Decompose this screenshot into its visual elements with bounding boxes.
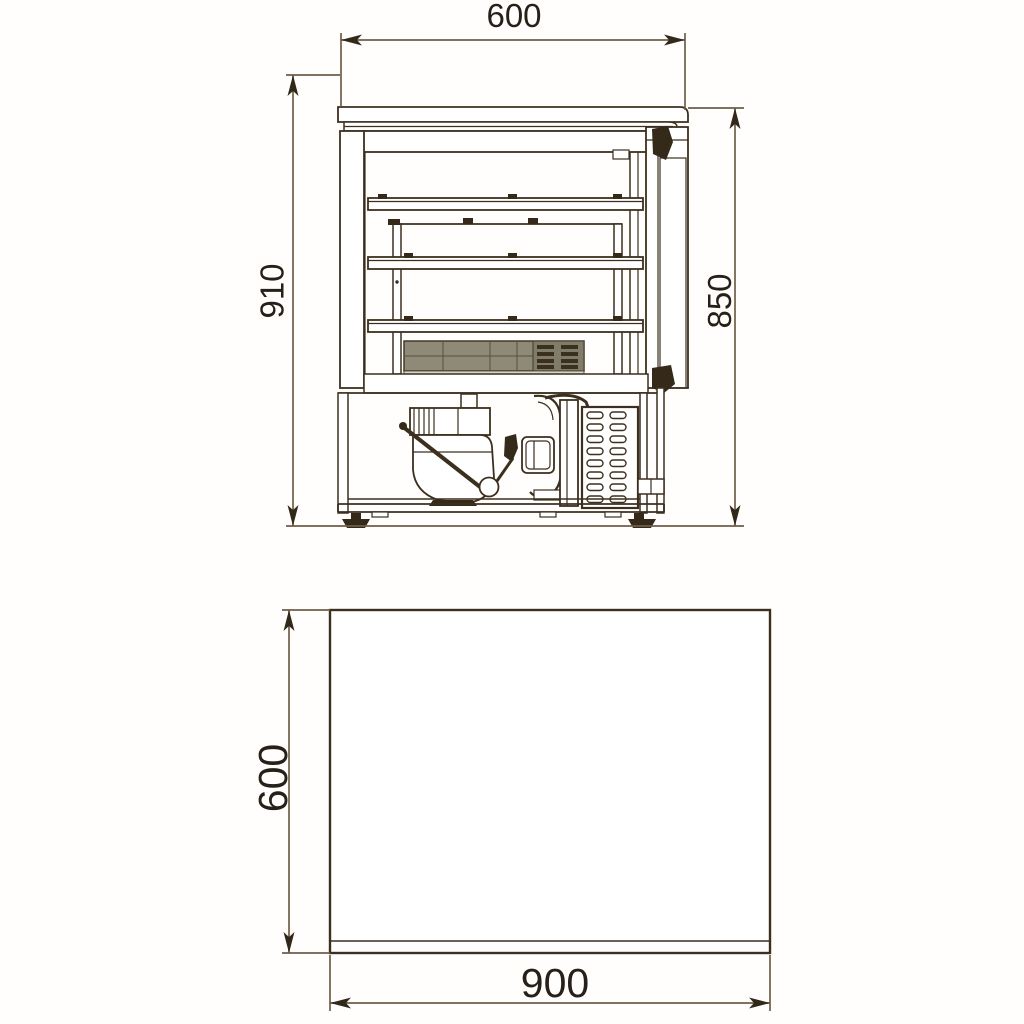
dim-label-side-height-left: 910 bbox=[254, 263, 291, 318]
dim-label-side-width: 600 bbox=[486, 0, 541, 34]
condenser bbox=[560, 400, 664, 508]
dimension-plan-width: 900 bbox=[330, 955, 770, 1011]
top-insulation bbox=[362, 131, 658, 152]
bottom-insulation bbox=[364, 374, 648, 393]
dimension-side-height-right: 850 bbox=[688, 108, 744, 526]
shelf-rail-2 bbox=[368, 253, 643, 269]
evaporator bbox=[404, 341, 584, 375]
fan-motor bbox=[504, 434, 518, 462]
compartment-right-frame bbox=[640, 393, 647, 513]
worktop bbox=[338, 107, 688, 131]
side-view: 600 910 850 bbox=[254, 0, 745, 528]
base-frame bbox=[338, 499, 664, 528]
dim-label-plan-depth: 600 bbox=[250, 744, 296, 812]
plan-view: 600 900 bbox=[250, 610, 770, 1011]
dimension-side-width: 600 bbox=[341, 0, 685, 110]
compartment-left-frame bbox=[338, 393, 348, 513]
drawing-page: 600 910 850 600 bbox=[0, 0, 1024, 1024]
machine-compartment bbox=[338, 388, 664, 513]
compressor bbox=[399, 394, 513, 506]
shelf-rail-1 bbox=[368, 194, 643, 210]
technical-drawing-canvas: 600 910 850 600 bbox=[0, 0, 1024, 1024]
dim-label-plan-width: 900 bbox=[521, 960, 589, 1006]
fan bbox=[504, 396, 564, 500]
shelf-rail-3 bbox=[368, 316, 643, 332]
dim-label-side-height-right: 850 bbox=[701, 273, 738, 328]
left-wall bbox=[340, 131, 365, 388]
dimension-plan-depth: 600 bbox=[250, 610, 330, 953]
plan-outline bbox=[330, 610, 770, 953]
